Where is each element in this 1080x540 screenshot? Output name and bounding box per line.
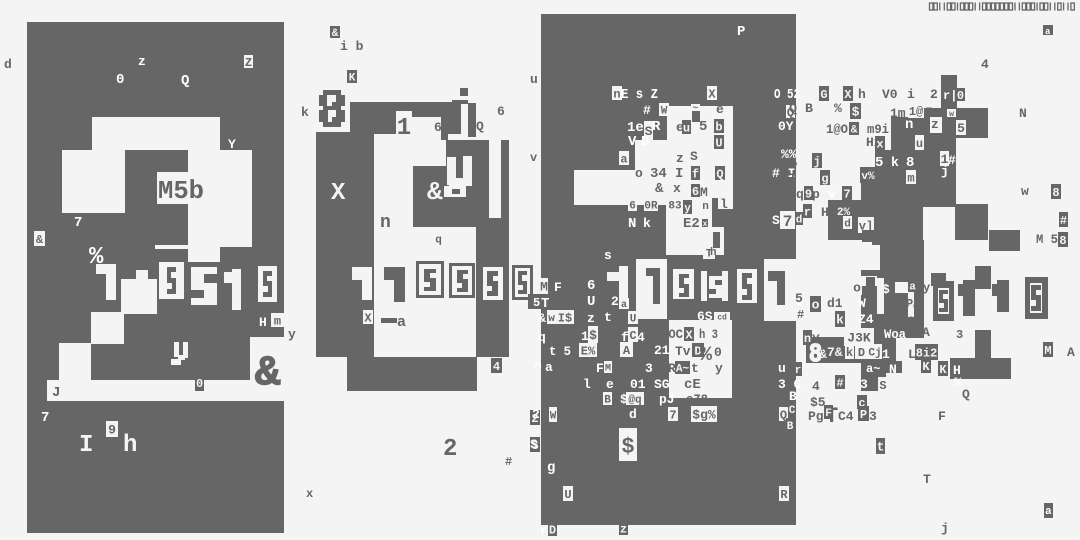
svg-text:0Y: 0Y bbox=[778, 119, 794, 134]
svg-text:m: m bbox=[907, 171, 914, 185]
svg-text:X: X bbox=[844, 88, 852, 102]
svg-text:7: 7 bbox=[41, 410, 49, 426]
svg-text:j: j bbox=[941, 164, 949, 179]
svg-text:h: h bbox=[123, 432, 137, 459]
svg-text:H: H bbox=[821, 205, 829, 220]
svg-text:4: 4 bbox=[493, 360, 500, 374]
svg-text:z: z bbox=[138, 54, 146, 69]
svg-text:u: u bbox=[778, 361, 786, 376]
svg-text:8: 8 bbox=[1052, 186, 1059, 200]
svg-text:J: J bbox=[52, 385, 60, 401]
svg-text:&: & bbox=[851, 125, 858, 137]
svg-text:^: ^ bbox=[534, 360, 542, 375]
svg-text:D: D bbox=[549, 523, 556, 537]
svg-text:#: # bbox=[505, 455, 512, 469]
svg-text:z: z bbox=[620, 522, 627, 536]
svg-text:g: g bbox=[547, 460, 555, 476]
svg-text:6: 6 bbox=[629, 201, 636, 213]
svg-text:y: y bbox=[715, 361, 723, 376]
svg-text:e: e bbox=[606, 377, 614, 392]
svg-text:S: S bbox=[690, 149, 698, 164]
svg-text:I: I bbox=[79, 432, 93, 459]
svg-text:X: X bbox=[708, 87, 716, 101]
svg-text:T: T bbox=[923, 472, 931, 487]
svg-text:a: a bbox=[909, 282, 916, 294]
svg-text:h 3: h 3 bbox=[699, 327, 718, 342]
svg-text:4: 4 bbox=[812, 379, 820, 394]
svg-text:cd: cd bbox=[717, 313, 727, 322]
svg-text:t: t bbox=[877, 440, 885, 455]
svg-text:$g%: $g% bbox=[692, 408, 716, 423]
svg-text:Woa: Woa bbox=[884, 327, 906, 342]
svg-text:U: U bbox=[587, 294, 595, 310]
svg-text:o: o bbox=[357, 312, 363, 323]
svg-text:n: n bbox=[380, 213, 391, 233]
svg-text:0: 0 bbox=[714, 345, 722, 360]
svg-text:w: w bbox=[949, 110, 954, 119]
svg-text:#: # bbox=[643, 103, 651, 118]
svg-text:z: z bbox=[587, 311, 595, 326]
svg-text:n: n bbox=[613, 87, 620, 101]
svg-text:3: 3 bbox=[869, 409, 877, 424]
svg-text:v: v bbox=[828, 187, 836, 202]
svg-text:I: I bbox=[789, 171, 797, 186]
svg-text:d1: d1 bbox=[827, 296, 843, 311]
svg-text:n: n bbox=[905, 117, 913, 133]
svg-text:y: y bbox=[923, 281, 930, 295]
svg-text:a: a bbox=[1045, 506, 1052, 518]
svg-text:M: M bbox=[700, 185, 708, 200]
svg-text:h: h bbox=[710, 247, 717, 259]
svg-text:A: A bbox=[922, 325, 930, 340]
svg-text:%: % bbox=[834, 101, 842, 116]
svg-text:Q: Q bbox=[962, 387, 970, 402]
svg-text:K: K bbox=[349, 73, 356, 85]
svg-text:N: N bbox=[1019, 106, 1027, 121]
svg-text:2: 2 bbox=[611, 294, 619, 309]
svg-text:21: 21 bbox=[654, 343, 670, 358]
svg-text:I$: I$ bbox=[558, 311, 572, 325]
svg-text:Q: Q bbox=[181, 73, 189, 89]
svg-text:#: # bbox=[836, 376, 843, 390]
svg-text:s: s bbox=[604, 248, 612, 263]
svg-text:5: 5 bbox=[957, 121, 965, 136]
svg-text:01: 01 bbox=[630, 377, 646, 392]
svg-text:&: & bbox=[538, 311, 546, 326]
svg-text:83: 83 bbox=[668, 201, 682, 213]
svg-text:k: k bbox=[846, 346, 853, 360]
svg-text:5: 5 bbox=[699, 119, 707, 135]
svg-text:T: T bbox=[541, 296, 549, 312]
svg-text:%: % bbox=[700, 344, 713, 367]
svg-text:F: F bbox=[825, 408, 832, 420]
svg-text:k: k bbox=[301, 105, 309, 120]
svg-text:r: r bbox=[795, 365, 802, 377]
svg-text:x: x bbox=[306, 487, 313, 501]
svg-text:&: & bbox=[655, 181, 664, 197]
svg-text:A: A bbox=[1067, 345, 1075, 360]
svg-text:i b: i b bbox=[340, 39, 364, 54]
svg-text:u: u bbox=[530, 72, 538, 87]
svg-text:34: 34 bbox=[650, 166, 667, 182]
svg-text:&: & bbox=[36, 233, 44, 247]
svg-text:U: U bbox=[630, 314, 637, 326]
svg-text:u: u bbox=[683, 121, 690, 135]
svg-text:G: G bbox=[820, 88, 827, 102]
svg-text:2: 2 bbox=[532, 407, 540, 422]
svg-text:M: M bbox=[1044, 344, 1051, 358]
svg-text:M5b: M5b bbox=[158, 176, 204, 206]
svg-text:t: t bbox=[691, 361, 699, 376]
svg-text:o: o bbox=[635, 166, 643, 181]
svg-text:YOC: YOC bbox=[661, 327, 683, 342]
svg-text:#: # bbox=[797, 308, 804, 322]
svg-text:j: j bbox=[813, 155, 820, 169]
svg-text:Z: Z bbox=[245, 56, 252, 70]
svg-text:I: I bbox=[675, 166, 683, 182]
svg-text:D: D bbox=[641, 134, 649, 150]
svg-text:$: $ bbox=[589, 328, 597, 343]
svg-text:W: W bbox=[550, 411, 557, 423]
svg-text:X: X bbox=[364, 311, 372, 325]
svg-text:1: 1 bbox=[581, 329, 589, 344]
svg-text:H: H bbox=[259, 315, 267, 330]
svg-text:A: A bbox=[623, 344, 631, 358]
svg-text:$: $ bbox=[621, 434, 634, 459]
svg-text:o: o bbox=[853, 281, 861, 296]
svg-text:d: d bbox=[796, 215, 803, 227]
svg-text:k: k bbox=[891, 155, 899, 170]
svg-text:A~: A~ bbox=[676, 364, 690, 376]
svg-text:R: R bbox=[780, 488, 788, 502]
svg-text:v: v bbox=[530, 151, 537, 165]
svg-text:w: w bbox=[548, 313, 555, 325]
svg-text:N: N bbox=[889, 362, 897, 377]
svg-text:b: b bbox=[715, 120, 722, 134]
svg-text:&: & bbox=[819, 347, 827, 362]
svg-text:E2: E2 bbox=[683, 216, 700, 232]
svg-text:P: P bbox=[737, 24, 745, 40]
svg-text:&: & bbox=[332, 28, 339, 40]
svg-text:2: 2 bbox=[930, 87, 938, 102]
svg-text:3: 3 bbox=[860, 377, 868, 392]
svg-text:6: 6 bbox=[434, 120, 442, 135]
svg-text:u: u bbox=[916, 137, 923, 151]
svg-text:k: k bbox=[836, 313, 844, 328]
svg-text:7&: 7& bbox=[827, 345, 843, 360]
svg-text:cE: cE bbox=[684, 377, 701, 393]
svg-text:x: x bbox=[876, 137, 883, 151]
svg-text:W: W bbox=[858, 296, 866, 311]
svg-text:oZ8: oZ8 bbox=[686, 392, 708, 407]
svg-text:M: M bbox=[605, 364, 611, 375]
svg-text:d: d bbox=[4, 57, 12, 72]
svg-text:0: 0 bbox=[196, 377, 203, 391]
svg-text:#: # bbox=[948, 153, 956, 168]
svg-text:7: 7 bbox=[669, 408, 676, 422]
svg-text:q: q bbox=[538, 330, 546, 345]
svg-text:W: W bbox=[661, 106, 668, 118]
svg-text:Tv: Tv bbox=[675, 344, 691, 359]
svg-text:C: C bbox=[789, 405, 796, 417]
svg-text:a: a bbox=[545, 360, 553, 375]
svg-text:t: t bbox=[604, 310, 612, 325]
svg-text:k: k bbox=[643, 216, 651, 231]
svg-text:8: 8 bbox=[1059, 234, 1066, 248]
svg-text:5: 5 bbox=[795, 291, 803, 306]
svg-text:h: h bbox=[858, 87, 866, 102]
svg-text:C4: C4 bbox=[838, 409, 854, 424]
svg-text:D: D bbox=[858, 346, 865, 360]
svg-text:J3K: J3K bbox=[847, 331, 871, 346]
svg-text:5: 5 bbox=[533, 296, 540, 310]
svg-text:Cj: Cj bbox=[868, 348, 881, 360]
svg-text:o: o bbox=[812, 298, 820, 313]
svg-text:X: X bbox=[331, 180, 346, 207]
svg-text:%: % bbox=[789, 155, 797, 170]
svg-text:V: V bbox=[628, 134, 637, 150]
svg-text:K: K bbox=[939, 363, 947, 377]
svg-text:F: F bbox=[938, 409, 946, 424]
svg-text:K: K bbox=[922, 360, 930, 374]
svg-text:Q: Q bbox=[716, 167, 723, 181]
svg-text:y: y bbox=[288, 327, 296, 342]
svg-text:X: X bbox=[685, 328, 693, 342]
svg-text:a: a bbox=[397, 314, 406, 331]
svg-text:m: m bbox=[274, 314, 281, 328]
svg-text:$5: $5 bbox=[810, 395, 826, 410]
svg-text:r: r bbox=[804, 205, 811, 219]
svg-text:5: 5 bbox=[875, 155, 883, 171]
svg-text:V0: V0 bbox=[882, 87, 898, 102]
svg-text:z: z bbox=[931, 117, 939, 132]
svg-text:l: l bbox=[583, 377, 591, 392]
svg-text:0R: 0R bbox=[644, 201, 658, 213]
svg-text:SG: SG bbox=[654, 377, 670, 392]
svg-text:Z4: Z4 bbox=[858, 312, 874, 327]
svg-text:g: g bbox=[821, 172, 828, 186]
svg-text:6: 6 bbox=[692, 185, 699, 199]
svg-text:pJ: pJ bbox=[659, 392, 675, 407]
svg-text:F: F bbox=[596, 361, 604, 376]
svg-text:E%: E% bbox=[581, 344, 596, 358]
svg-text:6: 6 bbox=[497, 104, 505, 119]
svg-text:&: & bbox=[255, 349, 281, 397]
svg-text:S: S bbox=[530, 437, 538, 452]
svg-text:&: & bbox=[427, 177, 443, 207]
svg-text:Y: Y bbox=[228, 137, 236, 152]
svg-text:4: 4 bbox=[637, 330, 645, 345]
svg-text:3 C: 3 C bbox=[778, 377, 802, 392]
svg-text:%: % bbox=[954, 375, 962, 390]
svg-text:l: l bbox=[720, 197, 728, 212]
svg-text:M: M bbox=[540, 280, 548, 295]
svg-text:e: e bbox=[716, 102, 724, 117]
svg-text:z: z bbox=[676, 151, 684, 166]
svg-text:y: y bbox=[684, 203, 691, 215]
svg-text:3: 3 bbox=[645, 361, 653, 376]
svg-text:6: 6 bbox=[587, 278, 595, 294]
svg-text:a: a bbox=[1045, 27, 1051, 37]
svg-text:0: 0 bbox=[116, 72, 124, 88]
svg-text:6S: 6S bbox=[697, 309, 713, 324]
svg-text:B: B bbox=[787, 421, 794, 433]
svg-text:f: f bbox=[692, 167, 699, 181]
svg-text:q: q bbox=[435, 235, 442, 247]
svg-text:U: U bbox=[715, 136, 722, 150]
svg-text:S: S bbox=[772, 213, 780, 228]
svg-text:E s Z: E s Z bbox=[621, 87, 658, 103]
svg-text:r: r bbox=[540, 524, 547, 538]
svg-text:B: B bbox=[604, 395, 611, 407]
svg-text:Q: Q bbox=[476, 119, 484, 134]
svg-text:Q B: Q B bbox=[789, 101, 813, 116]
svg-text:a: a bbox=[621, 300, 627, 311]
svg-text:S: S bbox=[879, 379, 886, 393]
svg-text:$: $ bbox=[852, 105, 860, 120]
svg-text:w: w bbox=[1021, 184, 1029, 199]
svg-text:q: q bbox=[796, 187, 804, 202]
svg-text:8: 8 bbox=[906, 155, 914, 171]
svg-text:v%: v% bbox=[861, 171, 875, 183]
svg-text:U: U bbox=[564, 488, 571, 502]
svg-text:x: x bbox=[673, 181, 681, 196]
svg-text:i: i bbox=[907, 87, 915, 102]
svg-text:0: 0 bbox=[957, 89, 964, 103]
svg-text:Pg: Pg bbox=[808, 409, 824, 424]
svg-text:x: x bbox=[703, 220, 708, 229]
svg-text:7: 7 bbox=[74, 215, 82, 231]
svg-text:1: 1 bbox=[882, 347, 890, 362]
svg-text:j: j bbox=[941, 521, 949, 536]
svg-text:2: 2 bbox=[443, 436, 457, 463]
svg-text:a~: a~ bbox=[866, 362, 880, 376]
svg-text:4: 4 bbox=[981, 57, 989, 72]
svg-text:o: o bbox=[908, 315, 914, 326]
svg-text:n: n bbox=[702, 201, 709, 213]
svg-text:t 5: t 5 bbox=[549, 344, 571, 359]
svg-text:3: 3 bbox=[956, 328, 963, 342]
svg-text:1: 1 bbox=[397, 115, 411, 142]
svg-text:a: a bbox=[620, 152, 627, 166]
svg-text:@q: @q bbox=[628, 395, 641, 407]
svg-text:7: 7 bbox=[783, 213, 793, 231]
svg-text:d: d bbox=[844, 219, 851, 231]
svg-text:9: 9 bbox=[108, 423, 116, 438]
svg-text:F: F bbox=[554, 280, 562, 295]
svg-text:M 5: M 5 bbox=[1036, 232, 1058, 247]
svg-text:r|: r| bbox=[943, 89, 957, 103]
svg-text:7: 7 bbox=[843, 187, 850, 201]
svg-text:1@O: 1@O bbox=[826, 122, 848, 137]
svg-text:P: P bbox=[860, 408, 867, 422]
svg-text:#: # bbox=[1060, 214, 1067, 228]
svg-text:p: p bbox=[812, 187, 820, 202]
svg-text:C: C bbox=[629, 329, 636, 343]
svg-text:d: d bbox=[629, 407, 637, 422]
svg-text:d: d bbox=[913, 301, 920, 313]
svg-text:R: R bbox=[652, 119, 661, 135]
svg-text:N: N bbox=[628, 216, 636, 232]
